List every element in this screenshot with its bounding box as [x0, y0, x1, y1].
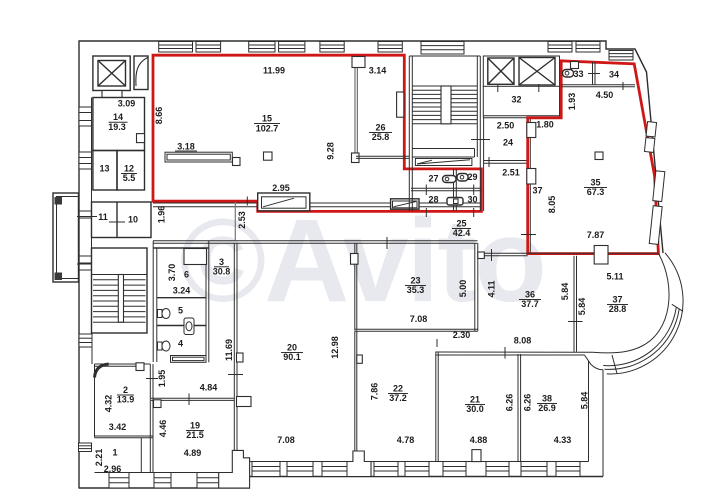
svg-text:3.42: 3.42 [109, 422, 127, 432]
svg-text:5.5: 5.5 [123, 173, 136, 183]
svg-text:6.26: 6.26 [523, 394, 533, 412]
svg-text:24: 24 [503, 138, 513, 148]
svg-text:7.86: 7.86 [370, 383, 380, 401]
svg-text:19.3: 19.3 [108, 122, 126, 132]
svg-text:6.26: 6.26 [505, 394, 515, 412]
svg-text:33: 33 [573, 69, 583, 79]
svg-text:22: 22 [393, 384, 403, 394]
svg-text:1.93: 1.93 [567, 93, 577, 111]
svg-text:29: 29 [467, 172, 477, 182]
svg-text:30.8: 30.8 [213, 267, 231, 277]
svg-text:67.3: 67.3 [587, 187, 605, 197]
svg-text:12.98: 12.98 [330, 336, 340, 359]
svg-text:10: 10 [128, 215, 138, 225]
svg-text:4.11: 4.11 [487, 280, 497, 297]
svg-text:13: 13 [99, 164, 109, 174]
svg-text:3.09: 3.09 [118, 99, 136, 109]
svg-text:23: 23 [410, 276, 420, 286]
svg-text:4.89: 4.89 [184, 448, 202, 458]
svg-text:4.46: 4.46 [158, 420, 168, 438]
svg-text:35.3: 35.3 [407, 285, 425, 295]
svg-text:12: 12 [124, 164, 134, 174]
svg-text:9.28: 9.28 [326, 142, 336, 160]
svg-text:14: 14 [113, 112, 123, 122]
svg-text:21.5: 21.5 [186, 430, 204, 440]
svg-text:5.84: 5.84 [560, 283, 570, 301]
svg-text:4.78: 4.78 [397, 435, 415, 445]
svg-text:3.24: 3.24 [173, 286, 191, 296]
svg-text:1.80: 1.80 [536, 120, 554, 130]
svg-text:102.7: 102.7 [256, 124, 279, 134]
svg-text:2.51: 2.51 [502, 168, 520, 178]
svg-text:11.99: 11.99 [263, 66, 285, 76]
svg-text:11.69: 11.69 [224, 339, 234, 361]
svg-text:21: 21 [470, 395, 480, 405]
svg-text:37.2: 37.2 [389, 393, 407, 403]
svg-text:2: 2 [123, 385, 128, 395]
svg-text:2.21: 2.21 [94, 449, 104, 467]
svg-text:7.08: 7.08 [410, 314, 428, 324]
svg-text:37.7: 37.7 [521, 299, 539, 309]
svg-text:4.84: 4.84 [200, 383, 218, 393]
svg-text:4.33: 4.33 [554, 435, 572, 445]
svg-text:26: 26 [375, 123, 385, 133]
svg-text:8.05: 8.05 [547, 196, 557, 214]
svg-text:15: 15 [262, 114, 272, 124]
svg-text:30: 30 [467, 195, 477, 205]
svg-text:7.08: 7.08 [277, 435, 295, 445]
svg-text:3.14: 3.14 [369, 66, 387, 76]
svg-text:30.0: 30.0 [466, 404, 484, 414]
svg-text:8.66: 8.66 [154, 107, 164, 125]
svg-text:27: 27 [428, 174, 438, 184]
svg-text:37: 37 [612, 295, 622, 305]
svg-text:11: 11 [98, 212, 108, 222]
svg-text:5.84: 5.84 [577, 298, 587, 316]
svg-text:28: 28 [428, 195, 438, 205]
svg-text:4.50: 4.50 [596, 90, 614, 100]
svg-text:25.8: 25.8 [372, 132, 390, 142]
svg-text:19: 19 [190, 421, 200, 431]
svg-text:35: 35 [590, 178, 600, 188]
svg-text:3: 3 [219, 257, 224, 267]
svg-text:2.95: 2.95 [272, 183, 290, 193]
svg-text:2.30: 2.30 [453, 330, 471, 340]
svg-text:4.88: 4.88 [470, 435, 488, 445]
svg-text:1.95: 1.95 [157, 370, 167, 388]
svg-text:2.50: 2.50 [497, 121, 515, 131]
svg-text:20: 20 [287, 343, 297, 353]
svg-text:38: 38 [542, 394, 552, 404]
svg-text:13.9: 13.9 [117, 395, 135, 405]
svg-text:37: 37 [532, 186, 542, 196]
svg-text:4: 4 [178, 339, 183, 349]
svg-text:5.11: 5.11 [606, 272, 623, 282]
svg-text:2.53: 2.53 [237, 211, 247, 229]
svg-text:1.96: 1.96 [157, 206, 167, 224]
svg-text:25: 25 [456, 219, 466, 229]
svg-text:3.18: 3.18 [177, 142, 195, 152]
svg-text:6: 6 [184, 270, 189, 280]
svg-text:4.32: 4.32 [104, 395, 114, 413]
svg-text:90.1: 90.1 [283, 352, 301, 362]
svg-text:8.08: 8.08 [514, 336, 532, 346]
svg-text:3.70: 3.70 [167, 264, 177, 282]
svg-text:1: 1 [112, 448, 117, 458]
svg-text:5.00: 5.00 [458, 280, 468, 298]
svg-text:42.4: 42.4 [453, 228, 471, 238]
svg-text:28.8: 28.8 [609, 304, 627, 314]
svg-text:32: 32 [511, 95, 521, 105]
svg-text:26.9: 26.9 [538, 403, 556, 413]
svg-text:5: 5 [178, 306, 183, 316]
svg-text:34: 34 [609, 70, 619, 80]
svg-text:7.87: 7.87 [587, 230, 605, 240]
svg-text:36: 36 [525, 290, 535, 300]
